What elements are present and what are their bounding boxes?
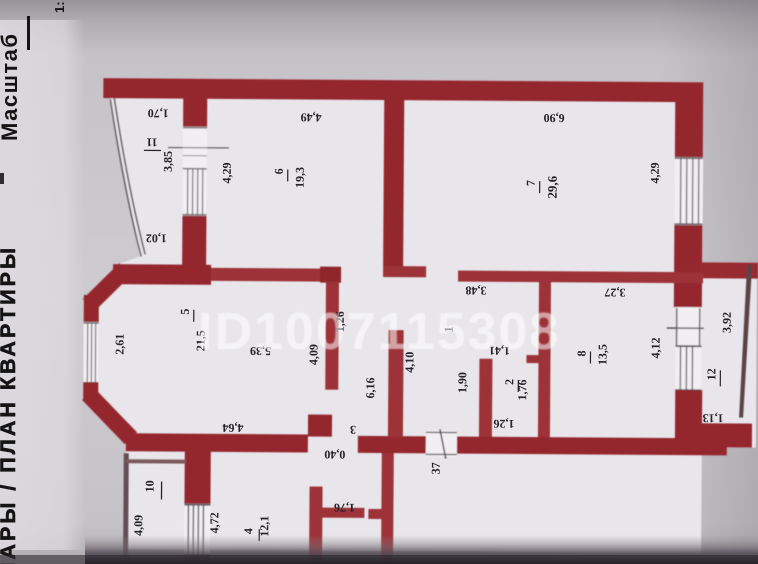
svg-text:12,1: 12,1 bbox=[257, 516, 271, 537]
svg-text:29,6: 29,6 bbox=[545, 175, 560, 198]
svg-text:2: 2 bbox=[502, 379, 516, 385]
svg-text:8: 8 bbox=[574, 350, 588, 356]
svg-text:3: 3 bbox=[350, 423, 356, 437]
svg-text:3,92: 3,92 bbox=[720, 312, 734, 333]
svg-text:6: 6 bbox=[272, 168, 286, 174]
svg-text:4,72: 4,72 bbox=[207, 512, 221, 533]
svg-text:1:: 1: bbox=[52, 1, 67, 13]
svg-text:ID1007115308: ID1007115308 bbox=[198, 303, 560, 361]
svg-text:1,76: 1,76 bbox=[515, 379, 529, 400]
svg-text:11: 11 bbox=[146, 135, 157, 149]
svg-text:3,85: 3,85 bbox=[161, 151, 175, 172]
svg-text:4,29: 4,29 bbox=[220, 162, 234, 183]
svg-text:37: 37 bbox=[429, 462, 443, 474]
svg-text:1,13: 1,13 bbox=[703, 411, 724, 425]
svg-text:6,90: 6,90 bbox=[544, 111, 565, 125]
svg-text:4: 4 bbox=[241, 528, 255, 534]
svg-text:Масштаб: Масштаб bbox=[0, 32, 22, 141]
svg-text:ПАРЫ / ПЛАН КВАРТИРЫ: ПАРЫ / ПЛАН КВАРТИРЫ bbox=[0, 245, 20, 564]
svg-text:1,70: 1,70 bbox=[148, 106, 169, 120]
svg-text:4,12: 4,12 bbox=[648, 337, 662, 358]
svg-text:1,76: 1,76 bbox=[334, 501, 355, 515]
svg-text:13,5: 13,5 bbox=[595, 344, 609, 365]
svg-text:12: 12 bbox=[704, 368, 718, 380]
svg-text:0,40: 0,40 bbox=[324, 448, 345, 462]
svg-text:3,48: 3,48 bbox=[465, 284, 486, 298]
svg-text:19,3: 19,3 bbox=[293, 167, 307, 188]
svg-text:2,61: 2,61 bbox=[112, 334, 126, 355]
svg-text:1,26: 1,26 bbox=[493, 417, 514, 431]
svg-text:4,09: 4,09 bbox=[131, 515, 145, 536]
svg-text:10: 10 bbox=[143, 480, 157, 492]
svg-text:5: 5 bbox=[178, 309, 192, 315]
svg-text:1,90: 1,90 bbox=[455, 372, 469, 393]
svg-text:4,64: 4,64 bbox=[222, 421, 243, 435]
svg-text:4,29: 4,29 bbox=[648, 162, 662, 183]
svg-text:3,27: 3,27 bbox=[604, 286, 625, 300]
svg-text:6,16: 6,16 bbox=[363, 377, 377, 398]
svg-text:7: 7 bbox=[524, 180, 538, 186]
svg-text:4,49: 4,49 bbox=[301, 110, 322, 124]
svg-text:1,02: 1,02 bbox=[146, 231, 167, 245]
